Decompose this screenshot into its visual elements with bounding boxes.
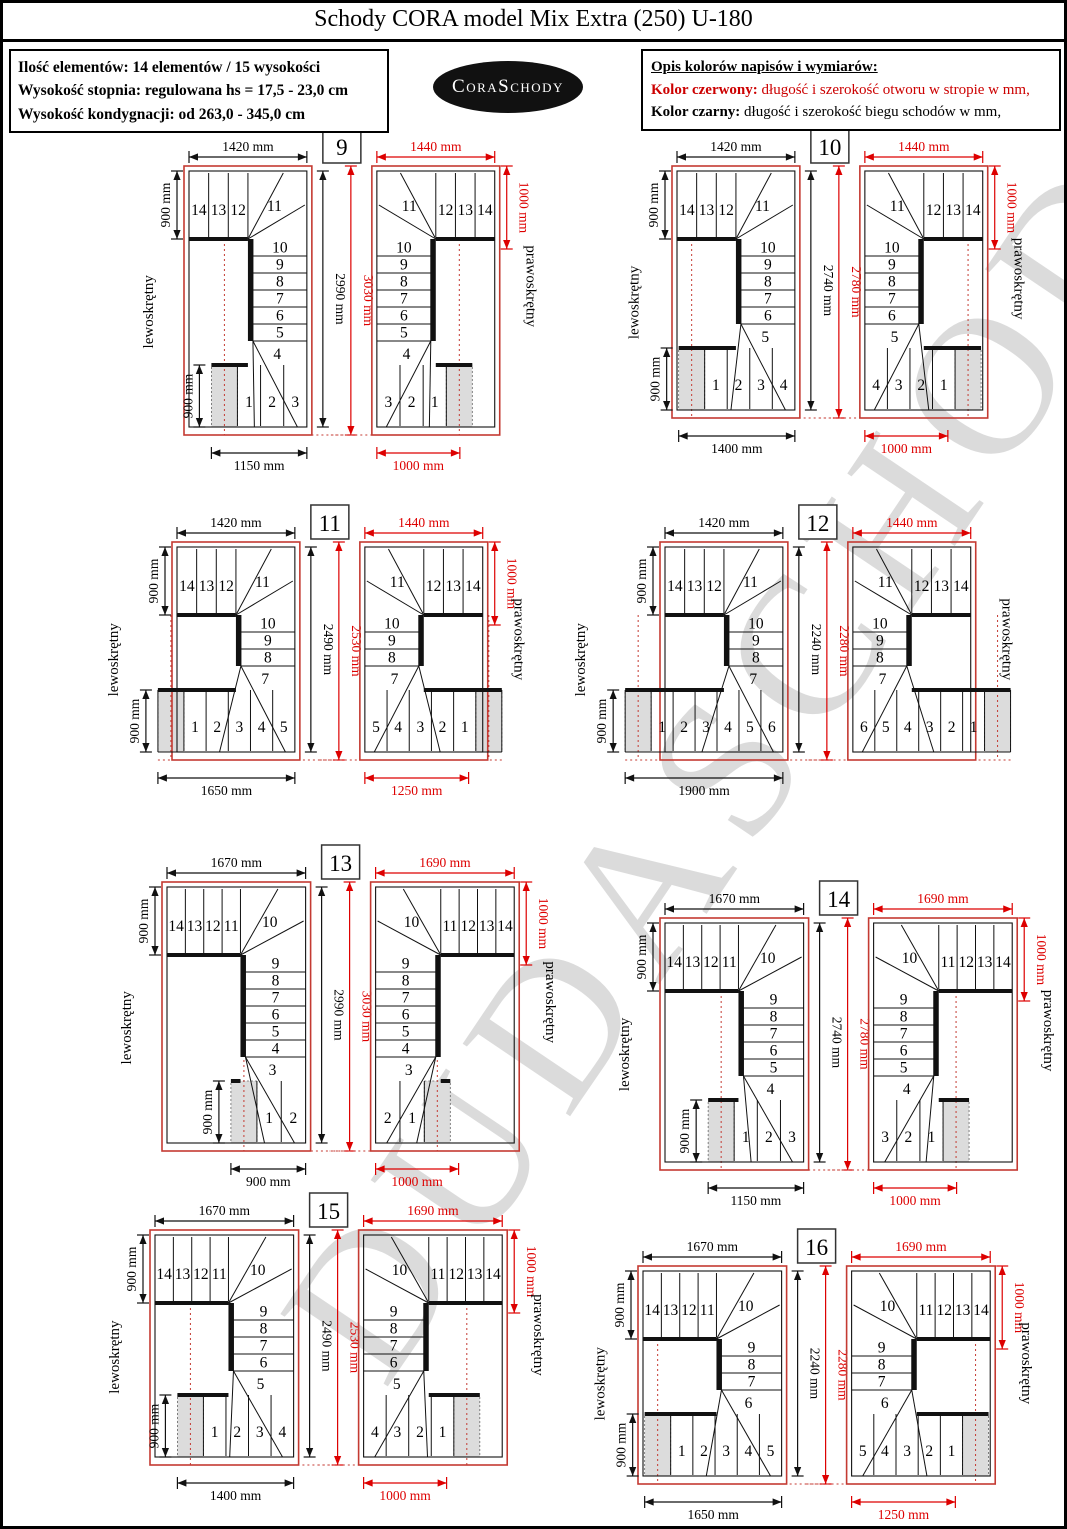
dim-label: 900 mm [158, 182, 173, 227]
step-number: 11 [743, 574, 758, 591]
step-number: 10 [880, 1298, 896, 1315]
step-number: 13 [955, 1302, 971, 1319]
dim-label: 900 mm [648, 356, 663, 401]
step-number: 8 [276, 274, 284, 291]
step-number: 3 [788, 1129, 796, 1146]
step-number: 13 [685, 954, 701, 971]
step-number: 1 [678, 1443, 686, 1460]
step-number: 14 [465, 578, 481, 595]
stair-diagram-left: 14131211109876541231670 mm900 mm900 mm11… [617, 891, 873, 1208]
dim-label: 1000 mm [524, 1246, 539, 1298]
dim-label: 1670 mm [199, 1203, 251, 1218]
right-turn-label: prawoskrętny [530, 1294, 546, 1376]
step-number: 6 [276, 308, 284, 325]
dim-label: 2990 mm [332, 989, 347, 1041]
plan-number: 16 [805, 1235, 828, 1260]
dim-label: 1690 mm [407, 1203, 459, 1218]
step-number: 4 [403, 346, 411, 363]
step-number: 3 [702, 719, 710, 736]
step-number: 12 [461, 918, 477, 935]
dim-label: 1000 mm [379, 1488, 431, 1503]
step-number: 7 [260, 1338, 268, 1355]
dim-label: 1420 mm [222, 139, 274, 154]
dim-label: 900 mm [127, 698, 142, 743]
dim-label: 2280 mm [837, 625, 852, 677]
step-number: 1 [742, 1129, 750, 1146]
step-number: 14 [644, 1302, 660, 1319]
step-number: 9 [264, 633, 272, 650]
step-number: 10 [384, 616, 400, 633]
step-number: 2 [680, 719, 688, 736]
stair-diagram-left: 1413121110987123451420 mm900 mm900 mm165… [106, 515, 364, 798]
step-number: 1 [658, 719, 666, 736]
dim-label: 900 mm [594, 698, 609, 743]
step-number: 7 [272, 990, 280, 1007]
plan-number: 15 [317, 1199, 340, 1224]
step-number: 5 [257, 1376, 265, 1393]
step-number: 9 [272, 956, 280, 973]
step-number: 12 [681, 1302, 697, 1319]
step-number: 6 [770, 1043, 778, 1060]
step-number: 12 [706, 578, 722, 595]
step-number: 5 [891, 329, 899, 346]
step-number: 3 [269, 1062, 277, 1079]
step-number: 8 [748, 1357, 756, 1374]
dim-label: 1420 mm [210, 515, 262, 530]
step-number: 4 [402, 1041, 410, 1058]
step-number: 5 [767, 1443, 775, 1460]
step-number: 4 [881, 1443, 889, 1460]
dim-label: 2990 mm [333, 273, 348, 325]
step-number: 12 [718, 202, 734, 219]
step-number: 4 [744, 1443, 752, 1460]
step-number: 14 [965, 202, 981, 219]
step-number: 7 [390, 1338, 398, 1355]
dim-label: 1400 mm [210, 1488, 262, 1503]
stair-diagram-left: 14131211109871234561420 mm900 mm900 mm19… [573, 515, 852, 798]
step-number: 14 [667, 578, 683, 595]
step-number: 10 [872, 616, 888, 633]
dim-label: 2490 mm [321, 624, 336, 676]
step-number: 8 [390, 1321, 398, 1338]
step-number: 10 [272, 240, 288, 257]
coraschody-logo: CoraSchody [433, 61, 583, 113]
right-turn-label: prawoskrętny [999, 598, 1015, 680]
step-number: 11 [212, 1266, 227, 1283]
step-number: 14 [191, 202, 207, 219]
step-number: 9 [276, 257, 284, 274]
dim-label: 1420 mm [698, 515, 750, 530]
step-number: 6 [764, 308, 772, 325]
dim-label: 1690 mm [895, 1239, 947, 1254]
info-line-elements: Ilość elementów: 14 elementów / 15 wysok… [18, 56, 380, 79]
step-number: 11 [390, 574, 405, 591]
step-number: 9 [402, 956, 410, 973]
step-number: 1 [211, 1424, 219, 1441]
step-number: 10 [396, 240, 412, 257]
dim-label: 900 mm [146, 558, 161, 603]
step-number: 13 [699, 202, 715, 219]
step-number: 5 [900, 1060, 908, 1077]
dim-label: 1420 mm [710, 139, 762, 154]
step-number: 8 [764, 274, 772, 291]
stair-diagram-left: 14131211109876512341670 mm900 mm900 mm14… [107, 1203, 363, 1503]
dim-label: 1150 mm [234, 458, 285, 473]
step-number: 6 [390, 1355, 398, 1372]
step-number: 1 [970, 719, 978, 736]
step-number: 8 [272, 973, 280, 990]
step-number: 2 [290, 1110, 298, 1127]
dim-label: 1650 mm [201, 783, 253, 798]
step-number: 10 [902, 950, 918, 967]
step-number: 9 [400, 257, 408, 274]
step-number: 7 [770, 1026, 778, 1043]
dim-label: 900 mm [634, 934, 649, 979]
left-turn-label: lewoskrętny [119, 991, 135, 1065]
step-number: 1 [439, 1424, 447, 1441]
step-number: 6 [745, 1395, 753, 1412]
dim-label: 1250 mm [878, 1507, 930, 1522]
step-number: 12 [449, 1266, 465, 1283]
step-number: 7 [261, 671, 269, 688]
step-number: 11 [918, 1302, 933, 1319]
step-number: 3 [926, 719, 934, 736]
dim-label: 1000 mm [1034, 934, 1049, 986]
step-number: 11 [224, 918, 239, 935]
step-number: 12 [205, 918, 221, 935]
legend-black-line: Kolor czarny: długość i szerokość biegu … [651, 101, 1051, 124]
step-number: 6 [888, 308, 896, 325]
stair-plan-pair-11: 1413121110987123451420 mm900 mm900 mm165… [95, 503, 529, 798]
step-number: 3 [903, 1443, 911, 1460]
step-number: 12 [218, 578, 234, 595]
stair-plan-pair-13: 14131211109876543121670 mm900 mm900 mm90… [85, 843, 560, 1189]
step-number: 1 [928, 1129, 936, 1146]
step-number: 5 [402, 1024, 410, 1041]
step-number: 9 [770, 992, 778, 1009]
right-turn-label: prawoskrętny [511, 598, 527, 680]
step-number: 10 [392, 1262, 408, 1279]
stair-diagram-left: 14131211109876512341420 mm900 mm900 mm14… [627, 139, 864, 456]
step-number: 13 [175, 1266, 191, 1283]
step-number: 2 [904, 1129, 912, 1146]
step-number: 8 [900, 1009, 908, 1026]
step-number: 13 [458, 202, 474, 219]
stair-plan-pair-15: 14131211109876512341670 mm900 mm900 mm14… [73, 1191, 548, 1503]
plan-number: 12 [806, 511, 829, 536]
step-number: 9 [764, 257, 772, 274]
dim-label: 1000 mm [517, 182, 532, 234]
dim-label: 1440 mm [410, 139, 462, 154]
right-turn-label: prawoskrętny [1018, 1322, 1034, 1404]
plan-number: 10 [818, 135, 841, 160]
step-number: 3 [757, 377, 765, 394]
step-number: 4 [780, 377, 788, 394]
step-number: 7 [879, 671, 887, 688]
step-number: 5 [372, 719, 380, 736]
step-number: 3 [416, 719, 424, 736]
dim-label: 900 mm [180, 373, 195, 418]
step-number: 3 [256, 1424, 264, 1441]
stair-diagram-left: 14131211109876123451670 mm900 mm900 mm16… [593, 1239, 851, 1522]
step-number: 6 [402, 1007, 410, 1024]
dim-label: 900 mm [124, 1246, 139, 1291]
step-number: 9 [748, 1340, 756, 1357]
step-number: 8 [752, 650, 760, 667]
dim-label: 2280 mm [836, 1349, 851, 1401]
step-number: 8 [770, 1009, 778, 1026]
step-number: 8 [888, 274, 896, 291]
step-number: 1 [431, 394, 439, 411]
step-number: 7 [888, 291, 896, 308]
step-number: 12 [703, 954, 719, 971]
dim-label: 900 mm [677, 1108, 692, 1153]
step-number: 5 [400, 325, 408, 342]
dim-label: 1440 mm [898, 139, 950, 154]
step-number: 7 [748, 1374, 756, 1391]
step-number: 10 [404, 914, 420, 931]
dim-label: 2530 mm [349, 625, 364, 677]
step-number: 13 [687, 578, 703, 595]
dim-label: 2740 mm [830, 1017, 845, 1069]
step-number: 4 [767, 1081, 775, 1098]
step-number: 3 [236, 719, 244, 736]
step-number: 13 [199, 578, 215, 595]
step-number: 2 [408, 394, 416, 411]
step-number: 13 [467, 1266, 483, 1283]
step-number: 5 [859, 1443, 867, 1460]
right-turn-label: prawoskrętny [523, 245, 539, 327]
step-number: 11 [402, 198, 417, 215]
left-turn-label: lewoskrętny [627, 265, 643, 339]
dim-label: 1440 mm [886, 515, 938, 530]
dim-label: 2780 mm [849, 266, 864, 318]
step-number: 2 [735, 377, 743, 394]
step-number: 5 [761, 329, 769, 346]
step-number: 5 [746, 719, 754, 736]
dim-label: 1000 mm [536, 898, 551, 950]
step-number: 9 [390, 1304, 398, 1321]
step-number: 3 [291, 394, 299, 411]
step-number: 1 [408, 1110, 416, 1127]
step-number: 5 [272, 1024, 280, 1041]
step-number: 11 [755, 198, 770, 215]
dim-label: 1000 mm [881, 441, 933, 456]
dim-label: 1690 mm [917, 891, 969, 906]
plan-number: 9 [336, 135, 348, 160]
dim-label: 900 mm [634, 558, 649, 603]
step-number: 2 [765, 1129, 773, 1146]
stair-plan-pair-16: 14131211109876123451670 mm900 mm900 mm16… [561, 1227, 1036, 1522]
left-turn-label: lewoskrętny [617, 1017, 633, 1091]
step-number: 14 [497, 918, 513, 935]
step-number: 3 [385, 394, 393, 411]
step-number: 7 [878, 1374, 886, 1391]
step-number: 2 [233, 1424, 241, 1441]
step-number: 4 [903, 1081, 911, 1098]
right-turn-label: prawoskrętny [542, 961, 558, 1043]
step-number: 6 [400, 308, 408, 325]
step-number: 6 [768, 719, 776, 736]
step-number: 5 [770, 1060, 778, 1077]
dim-label: 1400 mm [711, 441, 763, 456]
dim-label: 2780 mm [858, 1018, 873, 1070]
legend-red-line: Kolor czerwony: długość i szerokość otwo… [651, 79, 1051, 102]
step-number: 3 [394, 1424, 402, 1441]
dim-label: 1690 mm [419, 855, 471, 870]
dim-label: 3030 mm [361, 275, 376, 327]
step-number: 8 [878, 1357, 886, 1374]
step-number: 13 [663, 1302, 679, 1319]
step-number: 2 [268, 394, 276, 411]
step-number: 9 [888, 257, 896, 274]
left-turn-label: lewoskrętny [107, 1320, 123, 1394]
step-number: 6 [881, 1395, 889, 1412]
dim-label: 1650 mm [687, 1507, 739, 1522]
step-number: 4 [872, 377, 880, 394]
step-number: 13 [446, 578, 462, 595]
left-turn-label: lewoskrętny [106, 623, 122, 697]
right-turn-label: prawoskrętny [1011, 238, 1027, 320]
step-number: 12 [959, 954, 975, 971]
step-number: 2 [917, 377, 925, 394]
dim-label: 2490 mm [320, 1320, 335, 1372]
step-number: 11 [878, 574, 893, 591]
dim-label: 900 mm [146, 1403, 161, 1448]
right-turn-label: prawoskrętny [1040, 990, 1056, 1072]
step-number: 8 [402, 973, 410, 990]
step-number: 12 [438, 202, 454, 219]
plan-number: 13 [329, 851, 352, 876]
step-number: 8 [260, 1321, 268, 1338]
step-number: 1 [191, 719, 199, 736]
step-number: 10 [884, 240, 900, 257]
stair-diagram-left: 14131211109876543121670 mm900 mm900 mm90… [119, 855, 375, 1189]
step-number: 13 [934, 578, 950, 595]
stair-plan-pair-9: 14131211109876541231420 mm900 mm900 mm11… [107, 127, 541, 473]
step-number: 1 [948, 1443, 956, 1460]
step-number: 7 [900, 1026, 908, 1043]
step-number: 6 [860, 719, 868, 736]
step-number: 14 [477, 202, 493, 219]
step-number: 11 [255, 574, 270, 591]
step-number: 12 [230, 202, 246, 219]
step-number: 4 [258, 719, 266, 736]
step-number: 13 [479, 918, 495, 935]
dim-label: 1250 mm [391, 783, 443, 798]
step-number: 14 [179, 578, 195, 595]
step-number: 5 [393, 1376, 401, 1393]
step-number: 14 [485, 1266, 501, 1283]
step-number: 11 [940, 954, 955, 971]
step-number: 2 [439, 719, 447, 736]
step-number: 7 [749, 671, 757, 688]
step-number: 10 [262, 914, 278, 931]
step-number: 11 [267, 198, 282, 215]
step-number: 6 [272, 1007, 280, 1024]
step-number: 1 [940, 377, 948, 394]
step-number: 4 [272, 1041, 280, 1058]
step-number: 3 [895, 377, 903, 394]
step-number: 4 [394, 719, 402, 736]
step-number: 10 [760, 950, 776, 967]
step-number: 7 [400, 291, 408, 308]
dim-label: 1670 mm [211, 855, 263, 870]
step-number: 14 [156, 1266, 172, 1283]
step-number: 14 [953, 578, 969, 595]
left-turn-label: lewoskrętny [573, 623, 589, 697]
dim-label: 900 mm [646, 182, 661, 227]
step-number: 10 [738, 1298, 754, 1315]
dim-label: 900 mm [200, 1089, 215, 1134]
step-number: 7 [764, 291, 772, 308]
dim-label: 900 mm [136, 898, 151, 943]
dim-label: 1000 mm [391, 1174, 443, 1189]
step-number: 12 [926, 202, 942, 219]
step-number: 10 [760, 240, 776, 257]
step-number: 14 [973, 1302, 989, 1319]
dim-label: 2530 mm [348, 1322, 363, 1374]
left-turn-label: lewoskrętny [141, 275, 157, 349]
dim-label: 1000 mm [393, 458, 445, 473]
step-number: 13 [946, 202, 962, 219]
dim-label: 1000 mm [1005, 182, 1020, 234]
step-number: 2 [700, 1443, 708, 1460]
dim-label: 3030 mm [360, 991, 375, 1043]
step-number: 2 [213, 719, 221, 736]
dim-label: 900 mm [614, 1422, 629, 1467]
info-line-step-height: Wysokość stopnia: regulowana hs = 17,5 -… [18, 79, 380, 102]
info-box: Ilość elementów: 14 elementów / 15 wysok… [9, 49, 389, 133]
step-number: 8 [400, 274, 408, 291]
step-number: 14 [679, 202, 695, 219]
dim-label: 1440 mm [398, 515, 450, 530]
step-number: 1 [712, 377, 720, 394]
step-number: 10 [748, 616, 764, 633]
step-number: 7 [276, 291, 284, 308]
step-number: 7 [391, 671, 399, 688]
step-number: 9 [900, 992, 908, 1009]
step-number: 4 [278, 1424, 286, 1441]
dim-label: 900 mm [246, 1174, 291, 1189]
step-number: 11 [890, 198, 905, 215]
stair-diagram-left: 14131211109876541231420 mm900 mm900 mm11… [141, 139, 376, 473]
step-number: 3 [405, 1062, 413, 1079]
dim-label: 1000 mm [889, 1193, 941, 1208]
step-number: 4 [371, 1424, 379, 1441]
catalog-page: Schody CORA model Mix Extra (250) U-180 … [0, 0, 1067, 1529]
step-number: 1 [265, 1110, 273, 1127]
stair-plan-pair-14: 14131211109876541231670 mm900 mm900 mm11… [583, 879, 1058, 1208]
legend-heading: Opis kolorów napisów i wymiarów: [651, 56, 1051, 79]
step-number: 8 [264, 650, 272, 667]
step-number: 5 [280, 719, 288, 736]
step-number: 14 [666, 954, 682, 971]
stair-plan-pair-10: 14131211109876512341420 mm900 mm900 mm14… [595, 127, 1029, 456]
step-number: 6 [260, 1355, 268, 1372]
step-number: 10 [260, 616, 276, 633]
step-number: 13 [187, 918, 203, 935]
step-number: 5 [882, 719, 890, 736]
step-number: 10 [250, 1262, 266, 1279]
dim-label: 1150 mm [730, 1193, 781, 1208]
left-turn-label: lewoskrętny [593, 1347, 609, 1421]
step-number: 3 [722, 1443, 730, 1460]
step-number: 12 [193, 1266, 209, 1283]
step-number: 1 [461, 719, 469, 736]
step-number: 9 [878, 1340, 886, 1357]
step-number: 12 [937, 1302, 953, 1319]
